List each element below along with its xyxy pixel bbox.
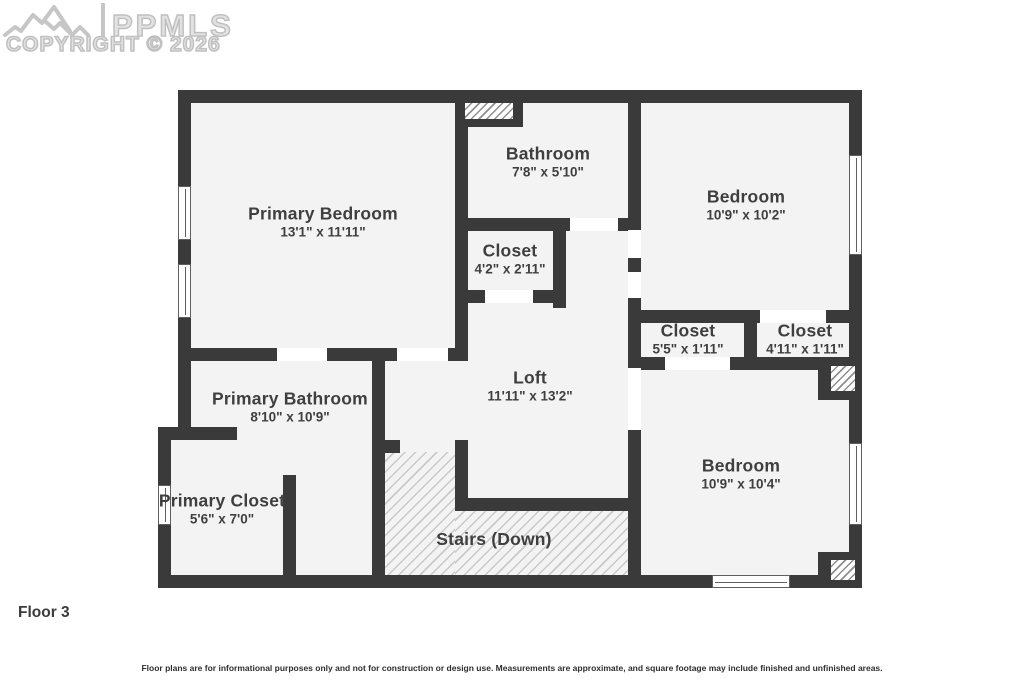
room-dims: 5'5" x 1'11" (652, 341, 723, 358)
door-opening-bedroom-top-right-b (628, 272, 641, 298)
door-opening-bedroom-bottom-right (628, 368, 641, 430)
window-bedroom-top-right (849, 155, 862, 255)
floor-label: Floor 3 (18, 604, 70, 622)
floor-plan: Primary Bedroom 13'1" x 11'11" Bathroom … (0, 0, 1024, 682)
room-dims: 4'2" x 2'11" (474, 261, 545, 278)
window-primary-bedroom-lower (178, 264, 191, 318)
room-dims: 10'9" x 10'4" (701, 476, 780, 493)
room-dims: 4'11" x 1'11" (766, 341, 844, 358)
room-name: Primary Bathroom (212, 389, 368, 409)
room-name: Closet (652, 321, 723, 341)
room-name: Primary Bedroom (248, 204, 398, 224)
wall-primary-bathroom-right (372, 348, 385, 588)
room-dims: 10'9" x 10'2" (706, 207, 785, 224)
chase-bathroom-icon (462, 100, 516, 122)
door-opening-bathroom (570, 218, 618, 231)
room-label-loft: Loft 11'11" x 13'2" (487, 368, 572, 405)
room-label-primary-bathroom: Primary Bathroom 8'10" x 10'9" (212, 389, 368, 426)
window-primary-bedroom-upper (178, 186, 191, 240)
room-dims: 11'11" x 13'2" (487, 388, 572, 405)
room-dims: 13'1" x 11'11" (248, 224, 398, 241)
wall-stairs-head-stub (372, 440, 400, 453)
door-opening-hall-closet (485, 290, 533, 303)
room-name: Closet (474, 241, 545, 261)
room-name: Bedroom (701, 456, 780, 476)
door-opening-primary-bedroom (397, 348, 448, 361)
room-label-bathroom: Bathroom 7'8" x 5'10" (506, 144, 590, 181)
room-label-hall-closet: Closet 4'2" x 2'11" (474, 241, 545, 278)
room-dims: 7'8" x 5'10" (506, 164, 590, 181)
door-opening-primary-bathroom (277, 348, 327, 361)
room-label-primary-closet: Primary Closet 5'6" x 7'0" (159, 491, 285, 528)
chase-top-right-icon (828, 363, 858, 394)
door-opening-closet-mid-left (665, 357, 730, 370)
door-opening-bedroom-top-right-a (628, 230, 641, 258)
room-name: Stairs (Down) (436, 529, 551, 549)
room-name: Loft (487, 368, 572, 388)
wall-closet-divider (744, 323, 757, 357)
room-name: Bathroom (506, 144, 590, 164)
chase-bottom-right-icon (828, 557, 858, 583)
room-dims: 5'6" x 7'0" (159, 511, 285, 528)
watermark-copyright: COPYRIGHT © 2026 (6, 33, 221, 57)
room-label-closet-mid-left: Closet 5'5" x 1'11" (652, 321, 723, 358)
room-name: Primary Closet (159, 491, 285, 511)
window-bedroom-bottom (712, 575, 790, 588)
window-bedroom-bottom-right (849, 443, 862, 525)
wall-loft-stairs-bottom (455, 498, 641, 511)
room-label-primary-bedroom: Primary Bedroom 13'1" x 11'11" (248, 204, 398, 241)
room-label-closet-mid-right: Closet 4'11" x 1'11" (766, 321, 844, 358)
room-label-bedroom-top-right: Bedroom 10'9" x 10'2" (706, 187, 785, 224)
room-label-stairs: Stairs (Down) (436, 529, 551, 549)
disclaimer-text: Floor plans are for informational purpos… (141, 663, 882, 673)
room-name: Bedroom (706, 187, 785, 207)
room-dims: 8'10" x 10'9" (212, 409, 368, 426)
stairs-hatch-upper (385, 452, 455, 575)
watermark: PPMLS COPYRIGHT © 2026 (0, 0, 260, 64)
room-label-bedroom-bottom-right: Bedroom 10'9" x 10'4" (701, 456, 780, 493)
room-name: Closet (766, 321, 844, 341)
